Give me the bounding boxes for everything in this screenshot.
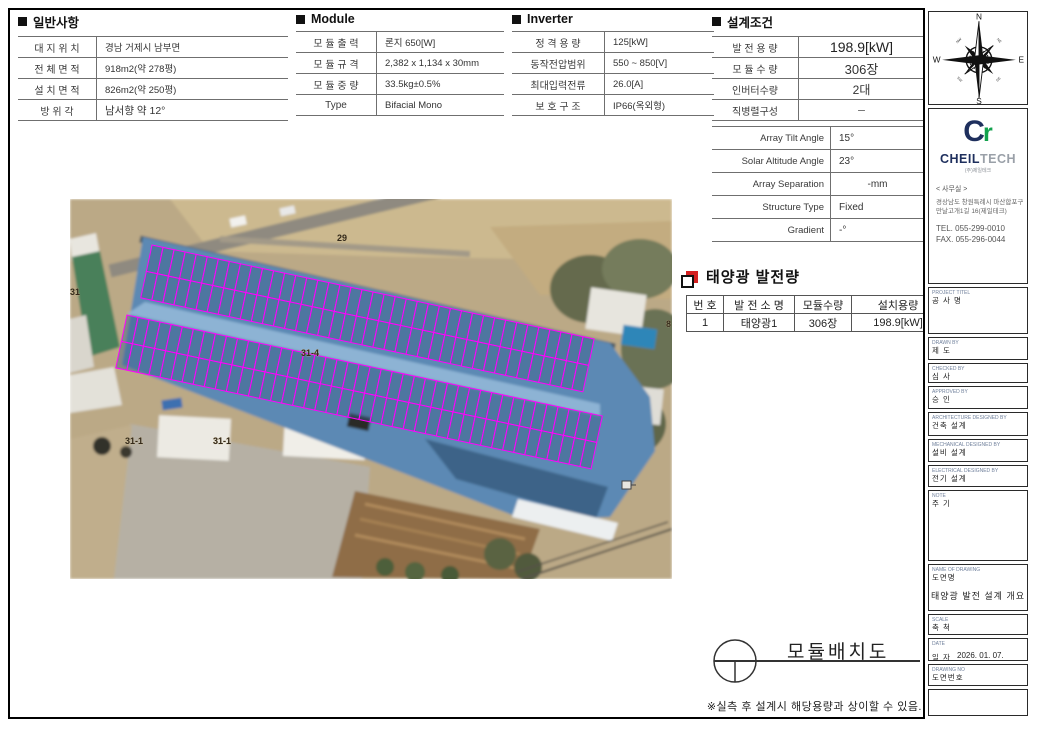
- field-project-title: PROJECT TITEL 공 사 명: [928, 287, 1028, 334]
- office-label: < 사무실 >: [936, 184, 1027, 194]
- row-value: Fixed: [831, 196, 925, 219]
- company-name-light: TECH: [980, 152, 1016, 166]
- table-row: 인버터수량2대: [712, 79, 924, 100]
- row-label: 최대입력전류: [512, 74, 605, 95]
- field-label-en: MECHANICAL DESIGNED BY: [929, 440, 1027, 448]
- row-label: 대 지 위 치: [18, 37, 97, 58]
- parcel-label: 31-1: [125, 436, 143, 446]
- field-label-kr: 도면명: [929, 573, 1027, 582]
- row-value: -mm: [831, 173, 925, 196]
- cell-module-count: 306장: [795, 314, 852, 332]
- square-bullet-icon: [712, 17, 721, 26]
- generation-table: 번 호 발 전 소 명 모듈수량 설치용량 1 태양광1 306장 198.9[…: [686, 295, 945, 332]
- table-row: TypeBifacial Mono: [296, 95, 504, 116]
- table-row: Structure TypeFixed: [712, 196, 924, 219]
- field-label-kr: 전기 설계: [929, 474, 1027, 483]
- design-table-english: Array Tilt Angle15° Solar Altitude Angle…: [712, 126, 924, 242]
- parcel-label: 31-1: [213, 436, 231, 446]
- section-title: 설계조건: [727, 12, 773, 31]
- drawing-name-value: 태양광 발전 설계 개요: [929, 589, 1027, 602]
- square-bullet-icon: [296, 15, 305, 24]
- row-value: 남서향 약 12°: [97, 100, 289, 121]
- company-subname: (주)제일테크: [965, 167, 991, 174]
- table-row: 방 위 각남서향 약 12°: [18, 100, 288, 121]
- field-drawn-by: DRAWN BY 제 도: [928, 337, 1028, 360]
- row-value: 론지 650[W]: [377, 32, 505, 53]
- field-label-en: PROJECT TITEL: [929, 288, 1027, 296]
- square-bullet-icon: [18, 17, 27, 26]
- row-label: 전 체 면 적: [18, 58, 97, 79]
- compass-west-label: W: [933, 56, 941, 65]
- table-header-row: 번 호 발 전 소 명 모듈수량 설치용량: [687, 296, 945, 314]
- field-label-en: DRAWN BY: [929, 338, 1027, 346]
- compass-rose-icon: N E S W NE SE SW NW: [929, 12, 1029, 104]
- logo-letter-c: C: [963, 115, 985, 148]
- row-value: 26.0[A]: [605, 74, 715, 95]
- row-label: Solar Altitude Angle: [712, 150, 831, 173]
- row-value: 경남 거제시 남부면: [97, 37, 289, 58]
- column-header: 모듈수량: [795, 296, 852, 314]
- table-row: Solar Altitude Angle23°: [712, 150, 924, 173]
- office-phone: TEL. 055-299-0010 FAX. 055-296-0044: [936, 223, 1027, 245]
- section-general: 일반사항 대 지 위 치경남 거제시 남부면 전 체 면 적918m2(약 27…: [18, 12, 288, 121]
- row-label: 정 격 용 량: [512, 32, 605, 53]
- row-label: 발 전 용 량: [712, 37, 799, 58]
- company-name-bold: CHEIL: [940, 152, 980, 166]
- footnote-text: ※실측 후 설계시 해당용량과 상이할 수 있음.: [560, 698, 922, 714]
- row-value: 198.9[kW]: [799, 37, 925, 58]
- row-value: 2,382 x 1,134 x 30mm: [377, 53, 505, 74]
- field-drawing-name: NAME OF DRAWING 도면명 태양광 발전 설계 개요: [928, 564, 1028, 611]
- section-design-header: 설계조건: [712, 12, 924, 31]
- table-row: 정 격 용 량125[kW]: [512, 32, 714, 53]
- design-sheet: { "general": { "title": "일반사항", "rows": …: [0, 0, 1039, 731]
- generation-title: 태양광 발전량: [706, 266, 800, 287]
- tel-number: TEL. 055-299-0010: [936, 223, 1027, 234]
- field-label-kr: 공 사 명: [929, 296, 1027, 305]
- field-label-kr: 승 인: [929, 395, 1027, 404]
- row-label: 설 치 면 적: [18, 79, 97, 100]
- table-row: 전 체 면 적918m2(약 278평): [18, 58, 288, 79]
- table-row: 설 치 면 적826m2(약 250평): [18, 79, 288, 100]
- section-generation: 태양광 발전량 번 호 발 전 소 명 모듈수량 설치용량 1 태양광1 306…: [686, 266, 945, 332]
- field-drawing-no: DRAWING NO 도면번호: [928, 664, 1028, 686]
- table-row: 모 듈 중 량33.5kg±0.5%: [296, 74, 504, 95]
- table-row: 동작전압범위550 ~ 850[V]: [512, 53, 714, 74]
- table-row: 직병렬구성－: [712, 100, 924, 121]
- layout-drawing-title: 모듈배치도: [787, 637, 889, 664]
- field-label-kr: 건축 설계: [929, 421, 1027, 430]
- field-label-en: CHECKED BY: [929, 364, 1027, 372]
- company-name: CHEILTECH: [940, 152, 1016, 166]
- office-address-line2: 만날고개1길 16(제일테크): [936, 207, 1027, 216]
- parcel-label: 29: [337, 233, 347, 243]
- compass-nw-label: NW: [955, 37, 963, 45]
- row-label: 모 듈 규 격: [296, 53, 377, 74]
- cell-plant-name: 태양광1: [724, 314, 795, 332]
- field-electrical-designed: ELECTRICAL DESIGNED BY 전기 설계: [928, 465, 1028, 487]
- field-checked-by: CHECKED BY 심 사: [928, 363, 1028, 383]
- row-value: 306장: [799, 58, 925, 79]
- section-inverter-header: Inverter: [512, 12, 714, 26]
- section-general-header: 일반사항: [18, 12, 288, 31]
- field-label-kr: 설비 설계: [929, 448, 1027, 457]
- row-value: 15°: [831, 127, 925, 150]
- row-label: 모 듈 중 량: [296, 74, 377, 95]
- parcel-label: 8: [666, 319, 671, 329]
- date-value: 2026. 01. 07.: [957, 651, 1004, 660]
- field-empty: [928, 689, 1028, 716]
- module-table: 모 듈 출 력론지 650[W] 모 듈 규 격2,382 x 1,134 x …: [296, 31, 504, 116]
- company-logo: Cr: [963, 119, 992, 150]
- row-value: 23°: [831, 150, 925, 173]
- section-title: Inverter: [527, 12, 573, 26]
- general-table: 대 지 위 치경남 거제시 남부면 전 체 면 적918m2(약 278평) 설…: [18, 36, 288, 121]
- field-label-en: DATE: [929, 639, 1027, 647]
- office-info: < 사무실 > 경상남도 창원특례시 마산합포구 만날고개1길 16(제일테크)…: [929, 174, 1027, 245]
- field-label-kr: 주 기: [929, 499, 1027, 508]
- row-label: 모 듈 수 량: [712, 58, 799, 79]
- field-label-kr: 축 척: [929, 623, 1027, 632]
- row-label: 직병렬구성: [712, 100, 799, 121]
- table-row: 1 태양광1 306장 198.9[kW]: [687, 314, 945, 332]
- section-inverter: Inverter 정 격 용 량125[kW] 동작전압범위550 ~ 850[…: [512, 12, 714, 116]
- compass-south-label: S: [976, 97, 982, 104]
- field-architecture-designed: ARCHITECTURE DESIGNED BY 건축 설계: [928, 412, 1028, 436]
- row-label: Array Separation: [712, 173, 831, 196]
- square-bullet-icon: [512, 15, 521, 24]
- parcel-label: 31-4: [301, 348, 319, 358]
- table-row: 대 지 위 치경남 거제시 남부면: [18, 37, 288, 58]
- row-value: 33.5kg±0.5%: [377, 74, 505, 95]
- logo-letter-r: r: [983, 119, 993, 147]
- row-value: 550 ~ 850[V]: [605, 53, 715, 74]
- field-note: NOTE 주 기: [928, 490, 1028, 561]
- field-label-en: NAME OF DRAWING: [929, 565, 1027, 573]
- compass-sw-label: SW: [956, 76, 963, 83]
- row-value: 918m2(약 278평): [97, 58, 289, 79]
- compass-se-label: SE: [995, 76, 1002, 83]
- row-value: IP66(옥외형): [605, 95, 715, 116]
- field-label-kr: 심 사: [929, 372, 1027, 381]
- company-box: Cr CHEILTECH (주)제일테크 < 사무실 > 경상남도 창원특례시 …: [928, 108, 1028, 284]
- row-value: 125[kW]: [605, 32, 715, 53]
- row-value: －: [799, 100, 925, 121]
- field-label-en: APPROVED BY: [929, 387, 1027, 395]
- compass-east-label: E: [1019, 56, 1025, 65]
- field-scale: SCALE 축 척: [928, 614, 1028, 635]
- title-block-sidebar: N E S W NE SE SW NW Cr CHEILTECH (주)제일테크…: [923, 8, 1031, 719]
- row-label: 방 위 각: [18, 100, 97, 121]
- row-label: 동작전압범위: [512, 53, 605, 74]
- section-design: 설계조건 발 전 용 량198.9[kW] 모 듈 수 량306장 인버터수량2…: [712, 12, 924, 242]
- row-value: Bifacial Mono: [377, 95, 505, 116]
- row-value: 2대: [799, 79, 925, 100]
- field-approved-by: APPROVED BY 승 인: [928, 386, 1028, 409]
- table-row: 최대입력전류26.0[A]: [512, 74, 714, 95]
- table-row: 모 듈 출 력론지 650[W]: [296, 32, 504, 53]
- fax-number: FAX. 055-296-0044: [936, 234, 1027, 245]
- row-label: 인버터수량: [712, 79, 799, 100]
- column-header: 발 전 소 명: [724, 296, 795, 314]
- table-row: 모 듈 규 격2,382 x 1,134 x 30mm: [296, 53, 504, 74]
- table-row: Array Tilt Angle15°: [712, 127, 924, 150]
- field-label-kr: 제 도: [929, 346, 1027, 355]
- field-label-kr: 일 자: [929, 653, 951, 662]
- field-label-kr: 도면번호: [929, 673, 1027, 682]
- satellite-layout-map: 293131-431-131-18: [70, 199, 672, 579]
- table-row: 보 호 구 조IP66(옥외형): [512, 95, 714, 116]
- row-label: 모 듈 출 력: [296, 32, 377, 53]
- row-label: Array Tilt Angle: [712, 127, 831, 150]
- row-value: 826m2(약 250평): [97, 79, 289, 100]
- field-mechanical-designed: MECHANICAL DESIGNED BY 설비 설계: [928, 439, 1028, 462]
- table-row: Gradient-°: [712, 219, 924, 242]
- cell-number: 1: [687, 314, 724, 332]
- row-label: 보 호 구 조: [512, 95, 605, 116]
- field-label-en: ELECTRICAL DESIGNED BY: [929, 466, 1027, 474]
- design-table-korean: 발 전 용 량198.9[kW] 모 듈 수 량306장 인버터수량2대 직병렬…: [712, 36, 924, 121]
- section-module-header: Module: [296, 12, 504, 26]
- section-title: Module: [311, 12, 355, 26]
- column-header: 번 호: [687, 296, 724, 314]
- inverter-table: 정 격 용 량125[kW] 동작전압범위550 ~ 850[V] 최대입력전류…: [512, 31, 714, 116]
- row-value: -°: [831, 219, 925, 242]
- field-label-en: ARCHITECTURE DESIGNED BY: [929, 413, 1027, 421]
- field-label-en: NOTE: [929, 491, 1027, 499]
- compass-ne-label: NE: [996, 38, 1003, 45]
- row-label: Gradient: [712, 219, 831, 242]
- overlapping-squares-icon: [686, 271, 698, 283]
- compass-box: N E S W NE SE SW NW: [928, 11, 1028, 105]
- table-row: Array Separation-mm: [712, 173, 924, 196]
- parcel-label: 31: [70, 287, 80, 297]
- field-label-en: DRAWING NO: [929, 665, 1027, 673]
- section-title: 일반사항: [33, 12, 79, 31]
- field-label-en: SCALE: [929, 615, 1027, 623]
- office-address-line1: 경상남도 창원특례시 마산합포구: [936, 198, 1027, 207]
- table-row: 모 듈 수 량306장: [712, 58, 924, 79]
- compass-north-label: N: [976, 12, 982, 21]
- row-label: Structure Type: [712, 196, 831, 219]
- field-date: DATE 일 자 2026. 01. 07.: [928, 638, 1028, 661]
- generation-header: 태양광 발전량: [686, 266, 945, 287]
- table-row: 발 전 용 량198.9[kW]: [712, 37, 924, 58]
- section-module: Module 모 듈 출 력론지 650[W] 모 듈 규 격2,382 x 1…: [296, 12, 504, 116]
- row-label: Type: [296, 95, 377, 116]
